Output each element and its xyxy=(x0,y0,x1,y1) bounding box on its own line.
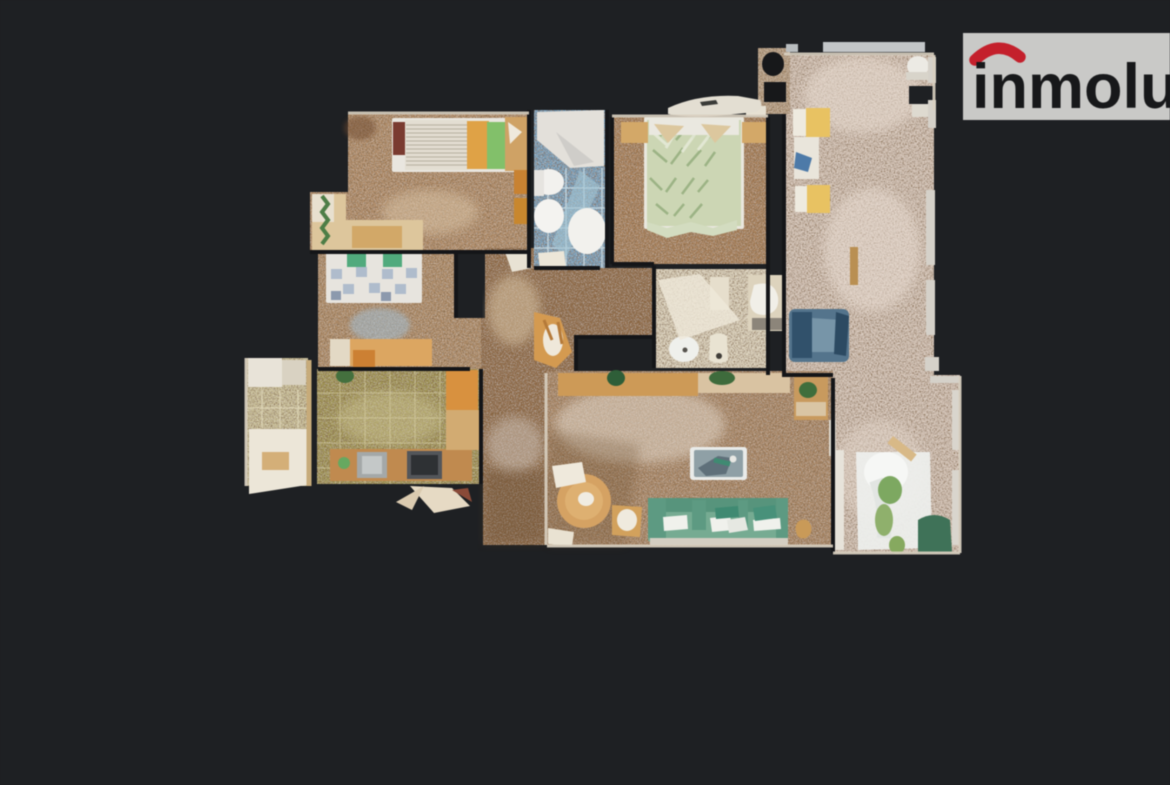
svg-text:inmolu: inmolu xyxy=(972,52,1170,122)
